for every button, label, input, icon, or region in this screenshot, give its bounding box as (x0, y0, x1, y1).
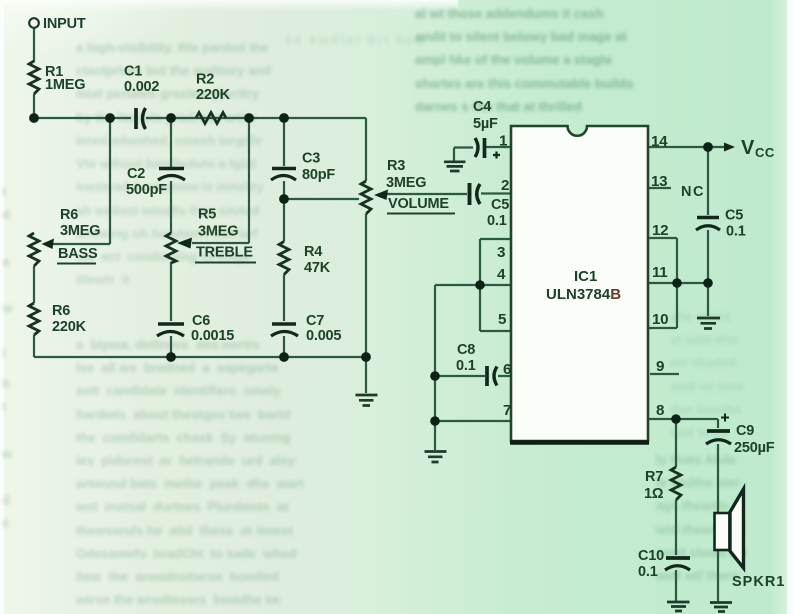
svg-text:5: 5 (498, 311, 507, 328)
svg-text:4: 4 (497, 266, 506, 283)
svg-text:6: 6 (503, 361, 511, 378)
svg-text:80pF: 80pF (302, 167, 335, 183)
svg-text:IC1: IC1 (574, 268, 597, 285)
svg-text:0.1: 0.1 (638, 564, 658, 580)
svg-text:TREBLE: TREBLE (196, 245, 253, 261)
svg-text:R3: R3 (387, 158, 405, 174)
svg-text:R6: R6 (60, 207, 78, 223)
svg-text:14: 14 (651, 133, 668, 150)
svg-text:500pF: 500pF (126, 182, 167, 198)
svg-text:13: 13 (651, 173, 667, 190)
svg-text:0.002: 0.002 (124, 79, 159, 95)
svg-text:SPKR1: SPKR1 (732, 574, 785, 590)
svg-text:3: 3 (497, 244, 505, 261)
svg-text:R2: R2 (196, 72, 214, 88)
svg-text:250µF: 250µF (734, 440, 775, 456)
svg-text:7: 7 (503, 402, 511, 419)
svg-text:C10: C10 (638, 548, 664, 564)
svg-text:R6: R6 (52, 303, 70, 319)
svg-text:220K: 220K (196, 87, 231, 103)
svg-text:R4: R4 (304, 244, 322, 260)
svg-text:R7: R7 (645, 469, 663, 485)
svg-text:1Ω: 1Ω (644, 486, 664, 502)
svg-text:9: 9 (656, 358, 664, 375)
svg-text:INPUT: INPUT (43, 16, 86, 32)
svg-text:VOLUME: VOLUME (388, 196, 449, 212)
svg-text:5µF: 5µF (473, 116, 498, 132)
svg-text:C8: C8 (457, 342, 475, 358)
svg-text:11: 11 (652, 264, 668, 281)
svg-text:C7: C7 (306, 313, 324, 329)
svg-text:NC: NC (681, 184, 705, 200)
svg-text:3MEG: 3MEG (198, 224, 238, 240)
svg-text:C5: C5 (725, 208, 743, 224)
svg-text:1: 1 (499, 133, 508, 150)
svg-text:10: 10 (652, 311, 668, 328)
svg-text:2: 2 (501, 177, 509, 194)
svg-text:1MEG: 1MEG (45, 77, 85, 93)
svg-text:0.1: 0.1 (456, 358, 476, 374)
svg-text:CC: CC (755, 145, 775, 160)
svg-text:C2: C2 (127, 166, 145, 182)
svg-text:3MEG: 3MEG (60, 223, 100, 239)
svg-text:220K: 220K (52, 319, 87, 335)
svg-text:8: 8 (656, 402, 664, 419)
svg-text:V: V (741, 137, 755, 159)
svg-text:3MEG: 3MEG (386, 175, 426, 191)
svg-text:0.1: 0.1 (726, 224, 746, 240)
svg-text:R5: R5 (198, 207, 216, 223)
svg-text:0.1: 0.1 (487, 213, 507, 229)
svg-text:ULN3784B: ULN3784B (546, 286, 621, 303)
svg-text:0.005: 0.005 (306, 328, 341, 344)
svg-text:C5: C5 (491, 197, 509, 213)
svg-text:12: 12 (652, 222, 668, 239)
svg-text:C9: C9 (736, 423, 754, 439)
svg-text:C4: C4 (473, 99, 491, 115)
svg-text:47K: 47K (304, 260, 331, 276)
svg-text:C6: C6 (192, 313, 210, 329)
svg-text:C3: C3 (302, 151, 320, 167)
svg-text:BASS: BASS (58, 246, 98, 262)
svg-text:0.0015: 0.0015 (191, 328, 234, 344)
svg-text:C1: C1 (124, 64, 142, 80)
